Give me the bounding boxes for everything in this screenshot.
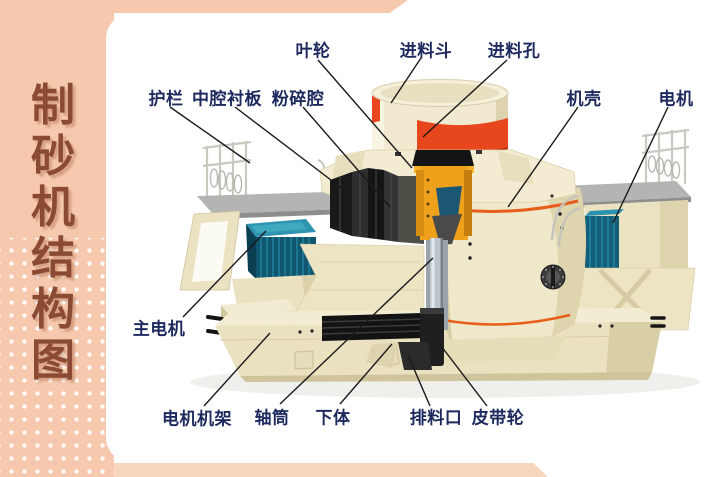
label-main-motor: 主电机 bbox=[133, 315, 186, 340]
label-guardrail: 护栏 bbox=[149, 85, 184, 110]
title-char: 构 bbox=[31, 288, 75, 332]
title-char: 图 bbox=[31, 339, 75, 383]
label-lower-body: 下体 bbox=[316, 404, 351, 429]
page-title: 制 砂 机 结 构 图 bbox=[0, 84, 106, 383]
label-shaft-tube: 轴筒 bbox=[255, 404, 290, 429]
title-char: 结 bbox=[31, 237, 75, 281]
title-char: 机 bbox=[31, 186, 75, 230]
label-motor-frame: 电机机架 bbox=[162, 405, 232, 430]
label-crushing-chamber: 粉碎腔 bbox=[272, 85, 325, 110]
label-feed-hopper: 进料斗 bbox=[400, 37, 453, 62]
title-char: 制 bbox=[31, 84, 75, 128]
label-middle-cavity-liner: 中腔衬板 bbox=[192, 85, 262, 110]
label-feed-inlet-hole: 进料孔 bbox=[488, 37, 541, 62]
content-panel bbox=[106, 13, 720, 463]
label-casing: 机壳 bbox=[567, 85, 602, 110]
label-motor: 电机 bbox=[659, 85, 694, 110]
label-discharge-port: 排料口 bbox=[410, 404, 463, 429]
page: 制 砂 机 结 构 图 bbox=[0, 0, 720, 477]
title-char: 砂 bbox=[31, 135, 75, 179]
label-impeller: 叶轮 bbox=[296, 37, 331, 62]
label-belt-pulley: 皮带轮 bbox=[472, 404, 525, 429]
